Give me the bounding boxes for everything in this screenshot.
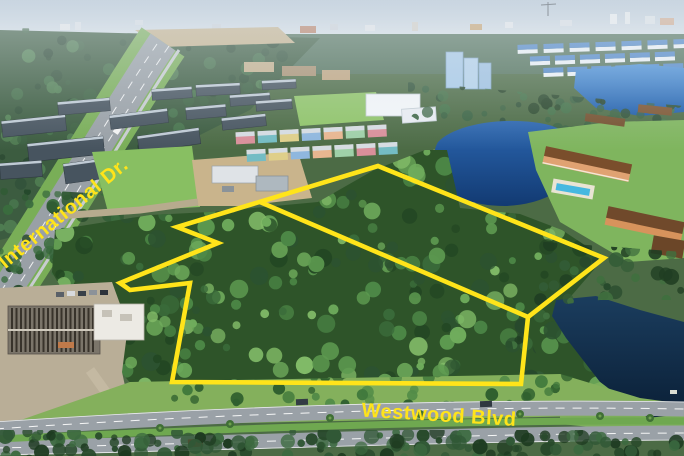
striped-roof-building [8,306,100,354]
car [296,399,308,405]
aerial-photo: International Dr. Westwood Blvd [0,0,684,456]
aerial-photo-canvas: International Dr. Westwood Blvd [0,0,684,456]
atmosphere-haze [0,0,684,150]
